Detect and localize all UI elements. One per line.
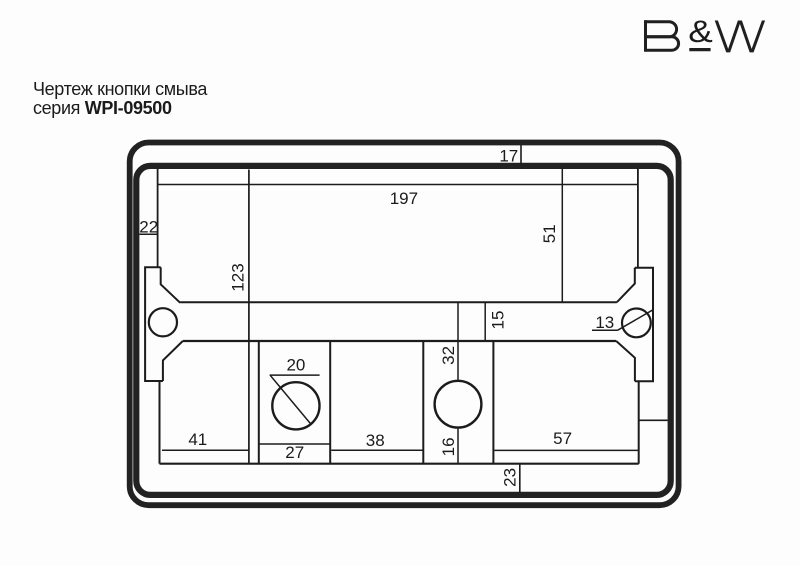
svg-text:16: 16 bbox=[439, 437, 458, 456]
svg-text:32: 32 bbox=[439, 346, 458, 365]
svg-text:38: 38 bbox=[366, 431, 385, 450]
svg-text:20: 20 bbox=[286, 355, 305, 374]
svg-text:серия WPI-09500: серия WPI-09500 bbox=[33, 98, 172, 118]
svg-text:23: 23 bbox=[501, 468, 520, 487]
svg-text:57: 57 bbox=[553, 429, 572, 448]
svg-text:15: 15 bbox=[488, 311, 507, 330]
svg-text:22: 22 bbox=[139, 217, 158, 236]
svg-text:51: 51 bbox=[540, 224, 559, 243]
svg-text:13: 13 bbox=[595, 313, 614, 332]
svg-text:Чертеж кнопки смыва: Чертеж кнопки смыва bbox=[33, 79, 208, 99]
svg-text:123: 123 bbox=[229, 263, 248, 291]
svg-text:&: & bbox=[688, 14, 713, 49]
svg-text:27: 27 bbox=[285, 443, 304, 462]
svg-text:17: 17 bbox=[499, 147, 518, 166]
svg-text:41: 41 bbox=[188, 430, 207, 449]
svg-text:197: 197 bbox=[390, 189, 418, 208]
